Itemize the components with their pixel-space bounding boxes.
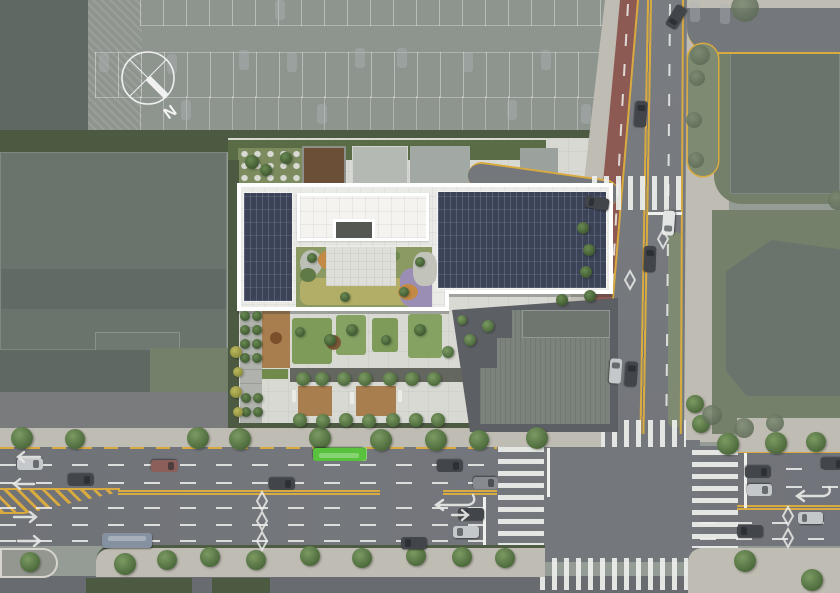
left-arrow-marking xyxy=(14,479,34,489)
diamond-marking xyxy=(257,492,267,510)
left-arrow-marking xyxy=(18,452,40,462)
u-turn-arrow-marking xyxy=(436,495,474,510)
right-arrow-marking xyxy=(452,510,468,520)
diamond-marking xyxy=(783,507,793,525)
left-arrow-marking xyxy=(797,487,830,501)
diamond-marking xyxy=(658,230,668,248)
right-arrow-marking xyxy=(18,536,40,546)
diamond-marking xyxy=(783,529,793,547)
compass-north-label: N xyxy=(161,102,180,123)
right-arrow-marking xyxy=(14,512,36,522)
lane-arrows xyxy=(14,452,830,546)
compass-needle xyxy=(148,78,166,96)
site-plan-canvas: N xyxy=(0,0,840,593)
diamond-marking xyxy=(257,512,267,530)
diamond-marking xyxy=(257,532,267,550)
bus-lane-diamonds xyxy=(257,230,793,550)
diamond-marking xyxy=(625,271,635,289)
compass: N xyxy=(103,28,215,140)
compass-rose xyxy=(122,52,174,104)
